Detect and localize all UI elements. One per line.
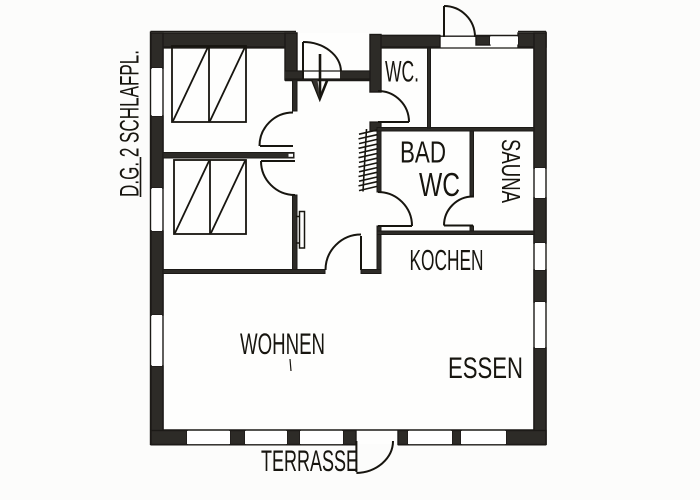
svg-text:SAUNA: SAUNA [496, 139, 526, 203]
svg-text:KOCHEN: KOCHEN [410, 245, 484, 277]
svg-text:BAD: BAD [400, 135, 446, 170]
svg-text:WC.: WC. [385, 56, 419, 89]
svg-text:TERRASSE: TERRASSE [261, 445, 358, 478]
svg-text:WOHNEN: WOHNEN [240, 328, 325, 361]
svg-text:ESSEN: ESSEN [448, 352, 523, 385]
svg-text:WC: WC [419, 166, 460, 203]
